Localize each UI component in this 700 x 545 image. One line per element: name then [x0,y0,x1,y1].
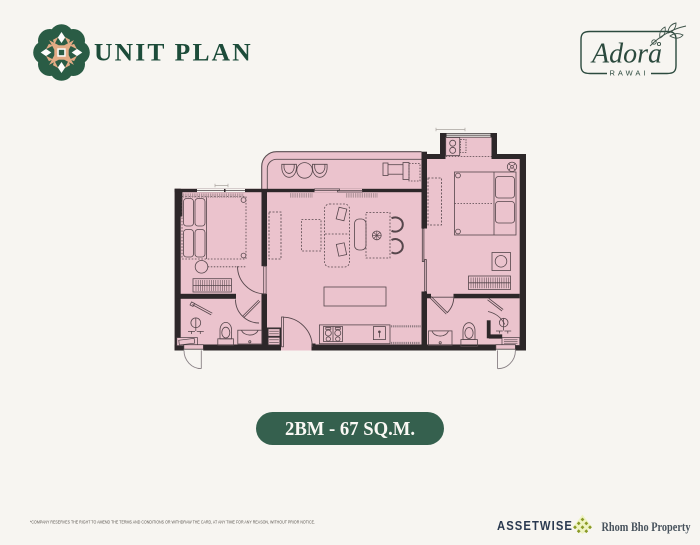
svg-text:ASSETWISE: ASSETWISE [497,519,573,533]
svg-text:Adora: Adora [590,39,662,70]
svg-text:UNIT PLAN: UNIT PLAN [94,38,253,67]
svg-text:RAWAI: RAWAI [609,69,648,78]
svg-text:*COMPANY RESERVES THE RIGHT TO: *COMPANY RESERVES THE RIGHT TO AMEND THE… [30,519,315,524]
svg-text:2BM - 67 SQ.M.: 2BM - 67 SQ.M. [285,419,415,440]
svg-text:Rhom Bho Property: Rhom Bho Property [602,519,691,534]
